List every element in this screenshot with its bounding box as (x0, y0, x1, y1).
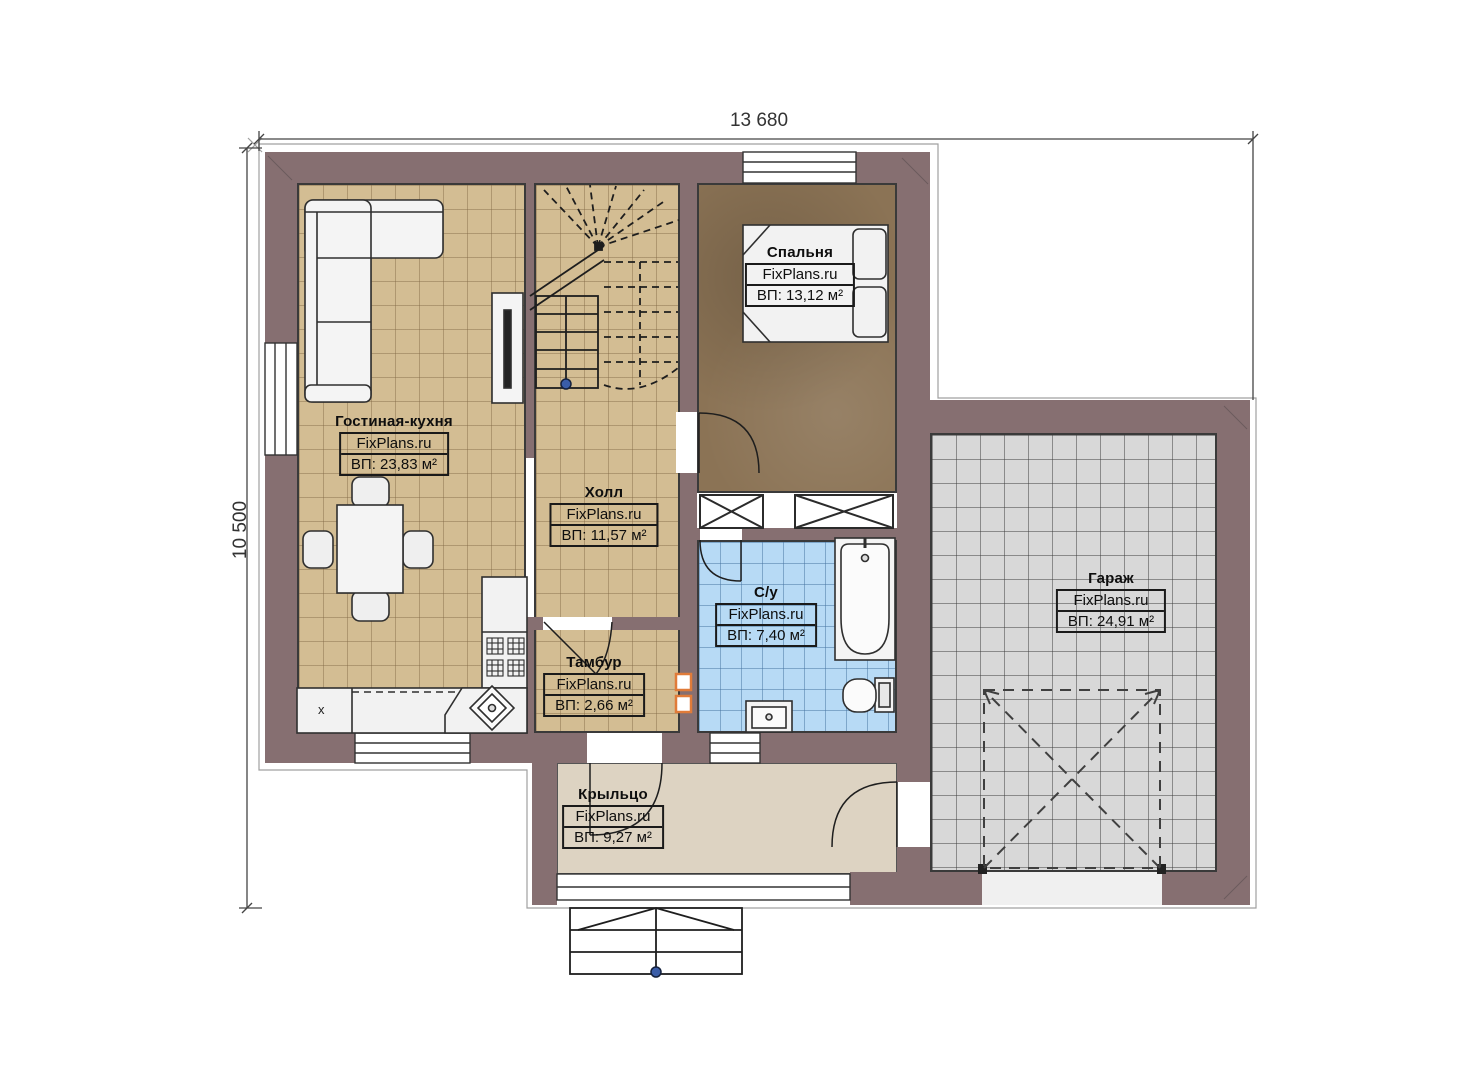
room-area: ВП: 24,91 м² (1058, 612, 1164, 631)
room-name: Спальня (745, 244, 855, 261)
room-name: Гараж (1056, 570, 1166, 587)
washbasin (746, 701, 792, 732)
stairs-start-marker (561, 379, 571, 389)
room-area: ВП: 13,12 м² (747, 286, 853, 305)
room-label-bathroom: С/у FixPlans.ru ВП: 7,40 м² (715, 584, 817, 647)
brand-watermark: FixPlans.ru (564, 807, 662, 828)
sofa (305, 200, 443, 402)
room-name: Тамбур (543, 654, 645, 671)
room-info-box: FixPlans.ru ВП: 9,27 м² (562, 805, 664, 849)
toilet (843, 678, 894, 712)
room-label-porch: Крыльцо FixPlans.ru ВП: 9,27 м² (562, 786, 664, 849)
tv-stand (492, 293, 523, 403)
brand-watermark: FixPlans.ru (341, 434, 447, 455)
window-left (265, 343, 297, 455)
room-name: С/у (715, 584, 817, 601)
porch-railing (557, 874, 850, 900)
tv-icon (504, 310, 511, 388)
bathtub (835, 538, 895, 660)
window-top (743, 152, 856, 183)
window-kitchen (355, 733, 470, 763)
entrance-steps (570, 908, 742, 977)
wall-vents (676, 674, 691, 712)
door-bedroom (699, 413, 759, 473)
dimension-width: 13 680 (709, 110, 809, 132)
closets (700, 495, 893, 528)
room-info-box: FixPlans.ru ВП: 2,66 м² (543, 673, 645, 717)
room-area: ВП: 9,27 м² (564, 828, 662, 847)
door-porch-garage (832, 782, 897, 847)
room-info-box: FixPlans.ru ВП: 11,57 м² (549, 503, 658, 547)
room-area: ВП: 2,66 м² (545, 696, 643, 715)
garage-parking-mark (984, 690, 1160, 868)
brand-watermark: FixPlans.ru (545, 675, 643, 696)
dining-set (303, 477, 433, 621)
room-info-box: FixPlans.ru ВП: 23,83 м² (339, 432, 449, 476)
room-area: ВП: 7,40 м² (717, 626, 815, 645)
window-bath-porch (710, 733, 760, 763)
room-name: Крыльцо (562, 786, 664, 803)
floor-plan: 13 680 10 500 Гостиная-кухня FixPlans.ru… (0, 0, 1473, 1080)
kitchen-counter (297, 577, 527, 733)
brand-watermark: FixPlans.ru (747, 265, 853, 286)
pillow (853, 229, 886, 279)
door-bathroom (700, 540, 741, 581)
room-info-box: FixPlans.ru ВП: 7,40 м² (715, 603, 817, 647)
room-area: ВП: 23,83 м² (341, 455, 447, 474)
room-label-vestibule: Тамбур FixPlans.ru ВП: 2,66 м² (543, 654, 645, 717)
room-info-box: FixPlans.ru ВП: 13,12 м² (745, 263, 855, 307)
dimension-height: 10 500 (230, 480, 252, 580)
room-label-garage: Гараж FixPlans.ru ВП: 24,91 м² (1056, 570, 1166, 633)
room-name: Гостиная-кухня (335, 413, 453, 430)
plan-linework (0, 0, 1473, 1080)
pillow (853, 287, 886, 337)
brand-watermark: FixPlans.ru (717, 605, 815, 626)
room-area: ВП: 11,57 м² (551, 526, 656, 545)
room-info-box: FixPlans.ru ВП: 24,91 м² (1056, 589, 1166, 633)
room-label-living: Гостиная-кухня FixPlans.ru ВП: 23,83 м² (335, 413, 453, 476)
room-label-bedroom: Спальня FixPlans.ru ВП: 13,12 м² (745, 244, 855, 307)
room-label-hall: Холл FixPlans.ru ВП: 11,57 м² (549, 484, 658, 547)
brand-watermark: FixPlans.ru (551, 505, 656, 526)
kitchen-unit-marker: x (318, 702, 325, 717)
steps-marker (651, 967, 661, 977)
brand-watermark: FixPlans.ru (1058, 591, 1164, 612)
staircase (530, 185, 679, 389)
room-name: Холл (549, 484, 658, 501)
